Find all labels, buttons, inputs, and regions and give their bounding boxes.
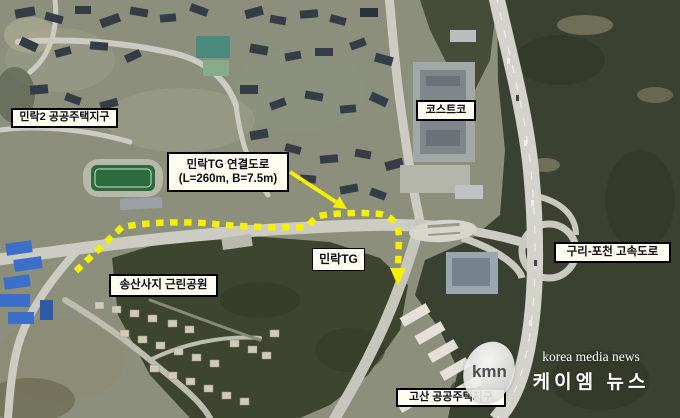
label-minrak-tg: 민락TG [312, 248, 365, 271]
connection-road-title: 민락TG 연결도로 [187, 158, 270, 172]
label-minrak2-text: 민락2 공공주택지구 [19, 111, 109, 125]
label-expressway: 구리-포천 고속도로 [554, 242, 671, 263]
label-expressway-text: 구리-포천 고속도로 [567, 245, 659, 259]
label-costco: 코스트코 [416, 100, 476, 121]
label-connection-road: 민락TG 연결도로 (L=260m, B=7.5m) [167, 152, 289, 192]
label-park-text: 송산사지 근린공원 [120, 278, 208, 292]
news-map-image: 민락2 공공주택지구 코스트코 민락TG 연결도로 (L=260m, B=7.5… [0, 0, 680, 418]
watermark-agency-ko: 케이엠 뉴스 [514, 367, 668, 394]
kmn-logo-text: kmn [472, 362, 507, 382]
watermark: korea media news 케이엠 뉴스 [514, 349, 668, 394]
label-park: 송산사지 근린공원 [109, 274, 218, 297]
watermark-agency-en: korea media news [514, 349, 668, 365]
label-minrak-tg-text: 민락TG [319, 252, 358, 267]
label-minrak2-district: 민락2 공공주택지구 [11, 108, 118, 128]
connection-road-spec: (L=260m, B=7.5m) [179, 172, 277, 186]
label-costco-text: 코스트코 [426, 104, 466, 118]
